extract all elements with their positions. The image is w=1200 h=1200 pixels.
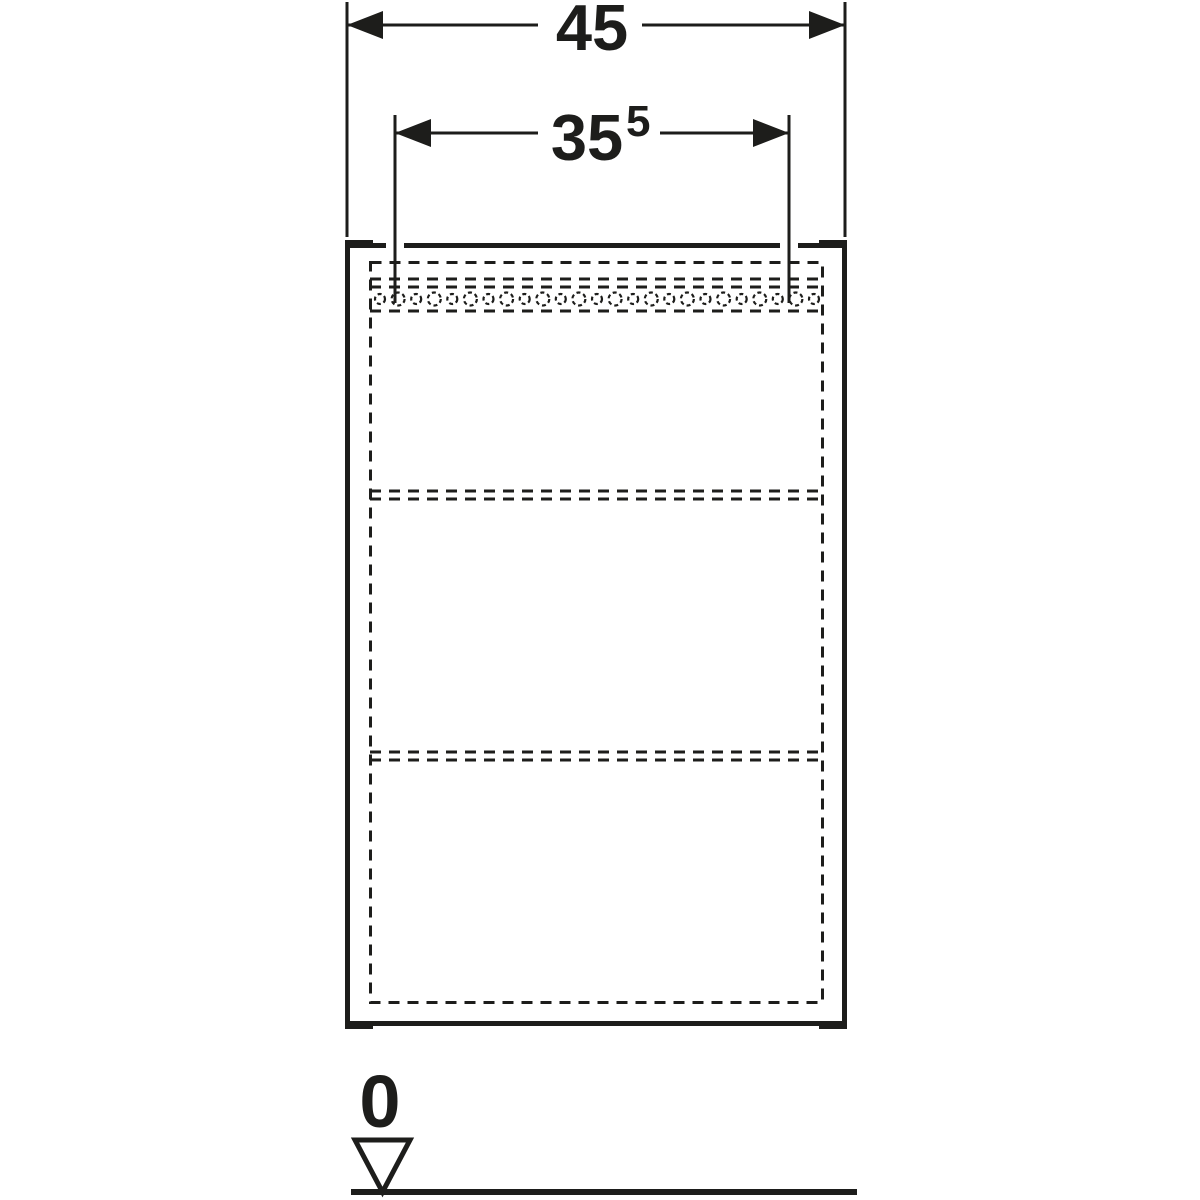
datum-triangle-icon (355, 1140, 410, 1192)
perforation-hole-icon (556, 294, 566, 304)
perforation-hole-icon (681, 293, 694, 306)
cabinet-outline (348, 246, 845, 1024)
arrow-right-icon (753, 119, 789, 147)
corner-tab-bottom-left (345, 1024, 373, 1029)
perforation-hole-icon (628, 294, 638, 304)
perforation-hole-icon (464, 293, 477, 306)
dimension-label-total-width: 45 (556, 0, 628, 64)
perforation-hole-icon (500, 293, 513, 306)
perforation-hole-icon (375, 294, 385, 304)
perforation-hole-icon (737, 294, 747, 304)
perforation-hole-icon (789, 293, 802, 306)
cabinet-inner-outline (371, 263, 823, 1003)
perforation-hole-icon (609, 293, 622, 306)
dimension-inner-width: 35 5 (395, 97, 789, 303)
perforation-hole-icon (447, 294, 457, 304)
perforation-hole-icon (411, 294, 421, 304)
perforation-hole-icon (536, 293, 549, 306)
corner-tab-bottom-right (819, 1024, 847, 1029)
perforation-hole-icon (809, 294, 819, 304)
dimension-label-inner-width-superscript: 5 (626, 97, 650, 146)
technical-drawing: 45 35 5 0 (0, 0, 1200, 1200)
corner-tab-top-left (345, 240, 373, 245)
perforation-hole-icon (701, 294, 711, 304)
perforation-hole-icon (645, 293, 658, 306)
dimension-label-inner-width: 35 (551, 101, 623, 174)
perforation-hole-icon (753, 293, 766, 306)
arrow-left-icon (395, 119, 431, 147)
perforation-hole-icon (717, 293, 730, 306)
perforation-hole-icon (572, 293, 585, 306)
corner-tab-top-right (819, 240, 847, 245)
datum-label: 0 (359, 1060, 400, 1143)
perforation-hole-icon (428, 293, 441, 306)
perforation-hole-icon (520, 294, 530, 304)
perforation-row (375, 293, 819, 306)
cabinet-front-view (345, 240, 847, 1029)
arrow-right-icon (809, 11, 845, 39)
perforation-hole-icon (664, 294, 674, 304)
perforation-hole-icon (592, 294, 602, 304)
arrow-left-icon (347, 11, 383, 39)
datum-level: 0 (351, 1060, 857, 1192)
perforation-hole-icon (484, 294, 494, 304)
perforation-hole-icon (773, 294, 783, 304)
